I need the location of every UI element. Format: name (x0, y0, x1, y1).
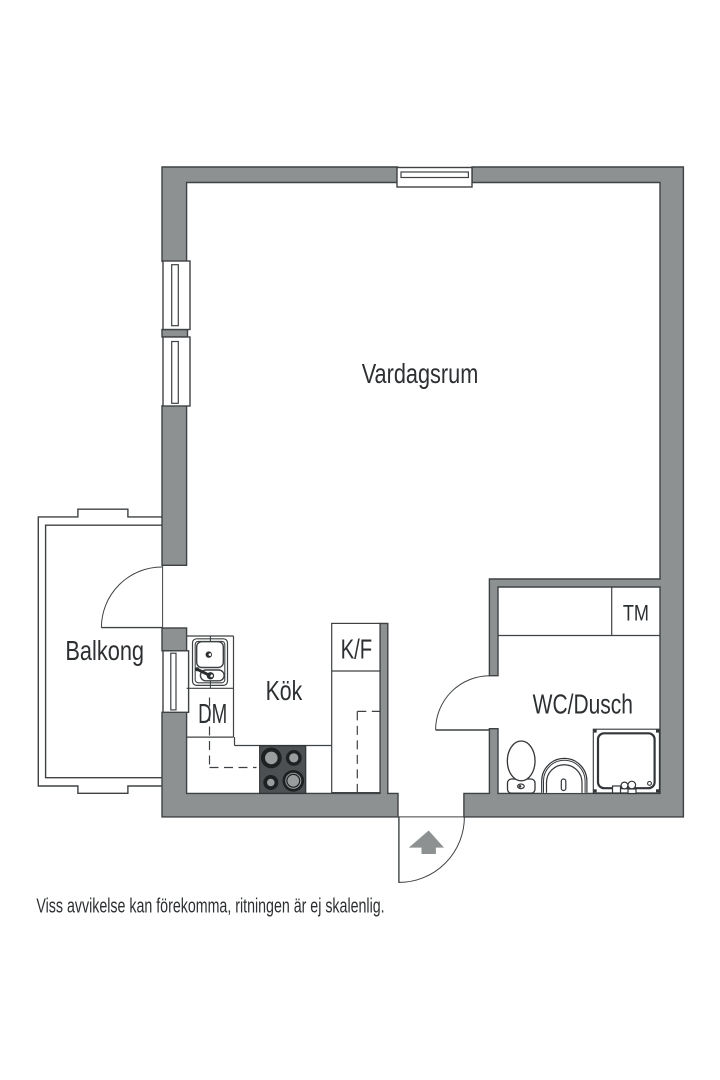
svg-text:TM: TM (623, 601, 649, 626)
svg-text:WC/Dusch: WC/Dusch (533, 688, 633, 719)
svg-text:Vardagsrum: Vardagsrum (362, 358, 479, 389)
svg-text:Kök: Kök (266, 675, 303, 706)
svg-text:Balkong: Balkong (65, 635, 144, 666)
svg-text:DM: DM (198, 698, 227, 729)
svg-text:Viss avvikelse kan förekomma,: Viss avvikelse kan förekomma, ritningen … (36, 895, 384, 917)
svg-text:K/F: K/F (341, 633, 373, 664)
